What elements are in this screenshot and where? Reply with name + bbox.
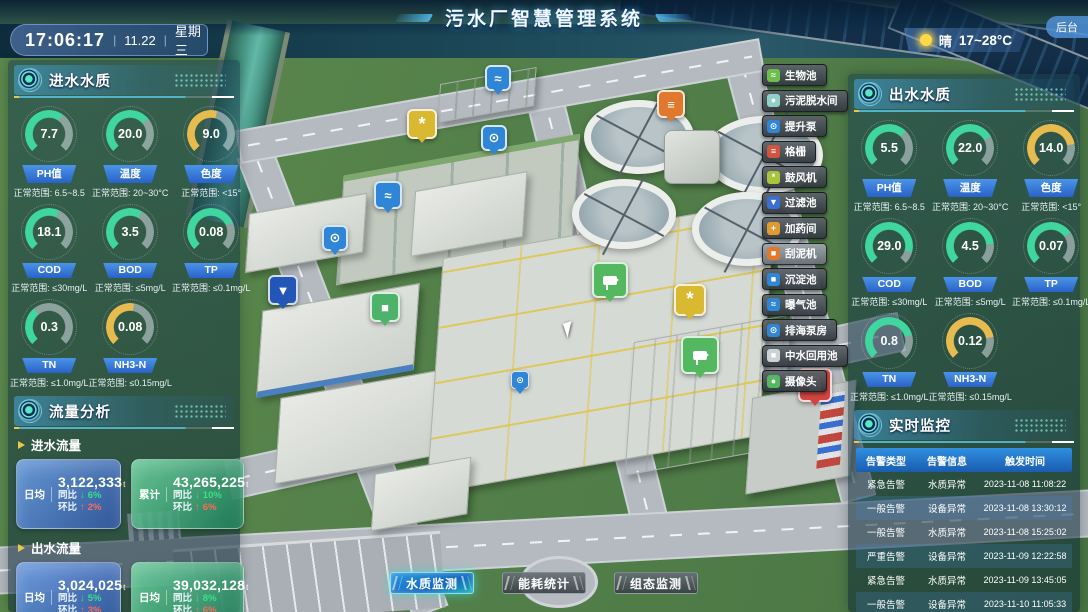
filter-pool-icon: ▼ <box>767 196 780 209</box>
central-hub-building <box>664 130 720 184</box>
facility-menu: ≈生物池 ●污泥脱水间 ⊙提升泵 ≡格栅 *鼓风机 ▼过滤池 +加药间 ■刮泥机… <box>762 64 848 392</box>
gauge-inlet-ph: 7.7 PH值 正常范围: 6.5~8.5 <box>10 106 88 199</box>
alarm-table: 告警类型 告警信息 触发时间 紧急告警水质异常2023-11-08 11:08:… <box>856 448 1072 612</box>
facility-btn-sea-discharge-pump[interactable]: ⊙排海泵房 <box>762 319 837 341</box>
arrow-icon <box>18 441 25 449</box>
datetime-display: 17:06:17 | 11.22 | 星期三 <box>10 24 208 56</box>
alarm-row[interactable]: 一般告警设备异常2023-11-08 13:30:12 <box>856 496 1072 520</box>
yoy-row: 同比↓6% <box>58 490 126 502</box>
up-arrow-icon: ↑ <box>80 605 85 612</box>
flow-analysis-header: 流量分析 <box>14 396 234 426</box>
gauge-inlet-nh3n: 0.08 NH3-N 正常范围: ≤0.15mg/L <box>88 299 171 389</box>
map-marker-camera[interactable] <box>681 336 719 374</box>
metric-label: 日均 <box>139 590 167 605</box>
weather-condition: 晴 <box>939 31 952 50</box>
metric-label: 日均 <box>24 590 52 605</box>
dots-decoration <box>1014 87 1066 101</box>
facility-btn-filter-pool[interactable]: ▼过滤池 <box>762 192 827 214</box>
lift-pump-icon: ⊙ <box>767 120 780 133</box>
metric-body: 3,024,025t 同比↓5% 环比↑3% <box>58 577 126 612</box>
alarm-row[interactable]: 一般告警水质异常2023-11-08 15:25:02 <box>856 520 1072 544</box>
outlet-flow-label: 出水流量 <box>18 538 230 557</box>
facility-btn-blower[interactable]: *鼓风机 <box>762 166 827 188</box>
outlet-flow-cards: 日均 3,024,025t 同比↓5% 环比↑3% 日均 39,032,128t… <box>8 562 240 612</box>
section-title: 出水水质 <box>889 84 951 105</box>
gauge-outlet-nh3n: 0.12 NH3-N 正常范围: ≤0.15mg/L <box>928 313 1011 403</box>
map-marker-camera[interactable] <box>592 262 628 298</box>
down-arrow-icon: ↓ <box>80 593 85 605</box>
facility-btn-dosing-room[interactable]: +加药间 <box>762 217 827 239</box>
outlet-flow-daily-card: 日均 3,024,025t 同比↓5% 环比↑3% <box>16 562 121 612</box>
facility-btn-grate[interactable]: ≡格栅 <box>762 141 816 163</box>
section-underline <box>14 96 234 98</box>
inlet-flow-total-card: 累计 43,265,225t 同比↓10% 环比↑6% <box>131 459 244 529</box>
dots-decoration <box>174 404 226 418</box>
inlet-quality-header: 进水水质 <box>14 65 234 95</box>
mud-scraper-icon: ■ <box>767 247 780 260</box>
section-emblem-icon <box>18 399 42 423</box>
gauge-inlet-chroma: 9.0 色度 正常范围: <15° <box>172 106 250 199</box>
down-arrow-icon: ↓ <box>195 593 200 605</box>
gauge-inlet-tn: 0.3 TN 正常范围: ≤1.0mg/L <box>10 299 88 389</box>
map-marker-pump-small[interactable]: ⊙ <box>511 371 529 389</box>
inlet-quality-panel: 进水水质 7.7 PH值 正常范围: 6.5~8.5 20.0 温度 正常范围:… <box>8 60 240 612</box>
yoy-row: 同比↓8% <box>173 593 249 605</box>
mom-row: 环比↑6% <box>173 502 249 514</box>
section-emblem-icon <box>18 68 42 92</box>
camera-icon <box>693 351 707 360</box>
yoy-row: 同比↓10% <box>173 490 249 502</box>
section-emblem-icon <box>858 413 882 437</box>
sun-icon <box>920 34 932 46</box>
backend-button[interactable]: 后台 <box>1046 16 1088 38</box>
gauge-outlet-temperature: 22.0 温度 正常范围: 20~30°C <box>928 120 1011 213</box>
section-underline <box>854 110 1074 112</box>
camera-icon <box>603 276 617 285</box>
metric-body: 43,265,225t 同比↓10% 环比↑6% <box>173 474 249 514</box>
alarm-row[interactable]: 一般告警设备异常2023-11-10 11:05:33 <box>856 592 1072 612</box>
facility-btn-camera[interactable]: ●摄像头 <box>762 370 827 392</box>
facility-btn-sedimentation-pool[interactable]: ■沉淀池 <box>762 268 827 290</box>
map-marker-reuse-pool[interactable]: ■ <box>370 292 400 322</box>
sea-discharge-pump-icon: ⊙ <box>767 324 780 337</box>
containers <box>816 391 845 469</box>
clarifier-tank <box>572 179 676 249</box>
gauge-inlet-temperature: 20.0 温度 正常范围: 20~30°C <box>88 106 171 199</box>
gauge-inlet-tp: 0.08 TP 正常范围: ≤0.1mg/L <box>172 204 250 294</box>
mom-row: 环比↑6% <box>173 605 249 612</box>
date: 11.22 <box>124 33 156 48</box>
map-marker-scraper[interactable]: ≡ <box>657 90 685 118</box>
aeration-pool-icon: ≈ <box>767 298 780 311</box>
down-arrow-icon: ↓ <box>80 490 85 502</box>
gauge-inlet-cod: 18.1 COD 正常范围: ≤30mg/L <box>10 204 88 294</box>
title-wing-left <box>395 14 434 22</box>
arrow-icon <box>18 544 25 552</box>
alarm-table-header: 告警类型 告警信息 触发时间 <box>856 448 1072 472</box>
map-marker-blower-fan[interactable]: * <box>674 284 706 316</box>
up-arrow-icon: ↑ <box>195 502 200 514</box>
map-marker-sedimentation[interactable]: ≈ <box>374 181 402 209</box>
bio-pool-icon: ≈ <box>767 69 780 82</box>
mom-row: 环比↑2% <box>58 502 126 514</box>
metric-label: 累计 <box>139 487 167 502</box>
separator: | <box>164 33 167 47</box>
flow-value: 3,024,025t <box>58 577 126 593</box>
alarm-row[interactable]: 严重告警设备异常2023-11-09 12:22:58 <box>856 544 1072 568</box>
flow-value: 43,265,225t <box>173 474 249 490</box>
section-emblem-icon <box>858 82 882 106</box>
weekday: 星期三 <box>175 21 207 59</box>
facility-btn-reclaimed-water-pool[interactable]: ■中水回用池 <box>762 345 848 367</box>
grate-icon: ≡ <box>767 145 780 158</box>
inlet-flow-daily-card: 日均 3,122,333t 同比↓6% 环比↑2% <box>16 459 121 529</box>
section-title: 流量分析 <box>49 401 111 422</box>
dots-decoration <box>1014 418 1066 432</box>
gauge-outlet-tp: 0.07 TP 正常范围: ≤0.1mg/L <box>1012 218 1088 308</box>
blower-icon: * <box>767 171 780 184</box>
gauge-outlet-ph: 5.5 PH值 正常范围: 6.5~8.5 <box>850 120 928 213</box>
bottom-tab-bar: 水质监测 能耗统计 组态监测 <box>390 572 698 594</box>
dashboard: ≈ ≡ * ⊙ ≈ ⊙ ▼ ■ * ⊙ 污水厂智慧管理系统 17:06:17 |… <box>0 0 1088 612</box>
outlet-flow-total-card: 日均 39,032,128t 同比↓8% 环比↑6% <box>131 562 244 612</box>
sedimentation-pool-icon: ■ <box>767 273 780 286</box>
separator: | <box>113 33 116 47</box>
section-underline <box>14 427 234 429</box>
inlet-flow-cards: 日均 3,122,333t 同比↓6% 环比↑2% 累计 43,265,225t… <box>8 459 240 529</box>
dots-decoration <box>174 73 226 87</box>
sludge-dewatering-icon: ● <box>767 94 780 107</box>
section-title: 进水水质 <box>49 70 111 91</box>
inlet-gauge-grid: 7.7 PH值 正常范围: 6.5~8.5 20.0 温度 正常范围: 20~3… <box>8 99 240 391</box>
page-title-text: 污水厂智慧管理系统 <box>445 4 643 31</box>
inlet-flow-label: 进水流量 <box>18 435 230 454</box>
down-arrow-icon: ↓ <box>195 490 200 502</box>
gauge-outlet-tn: 0.8 TN 正常范围: ≤1.0mg/L <box>850 313 928 403</box>
gauge-inlet-bod: 3.5 BOD 正常范围: ≤5mg/L <box>88 204 171 294</box>
metric-body: 3,122,333t 同比↓6% 环比↑2% <box>58 474 126 514</box>
temp-range: 17~28°C <box>959 33 1012 48</box>
section-underline <box>854 441 1074 443</box>
page-title: 污水厂智慧管理系统 <box>397 4 691 31</box>
up-arrow-icon: ↑ <box>195 605 200 612</box>
mom-row: 环比↑3% <box>58 605 126 612</box>
weather-display: 晴 17~28°C <box>904 28 1028 52</box>
map-marker-aeration-basin[interactable]: ≈ <box>485 65 511 91</box>
outlet-quality-panel: 出水水质 5.5 PH值 正常范围: 6.5~8.5 22.0 温度 正常范围:… <box>848 74 1080 612</box>
section-title: 实时监控 <box>889 415 951 436</box>
map-marker-filter[interactable]: ▼ <box>268 275 298 305</box>
camera-icon: ● <box>767 375 780 388</box>
facility-btn-sludge-dewatering[interactable]: ●污泥脱水间 <box>762 90 848 112</box>
reclaimed-water-pool-icon: ■ <box>767 349 780 362</box>
outlet-gauge-grid: 5.5 PH值 正常范围: 6.5~8.5 22.0 温度 正常范围: 20~3… <box>848 113 1080 405</box>
map-marker-pump[interactable]: ⊙ <box>322 225 348 251</box>
dosing-room-icon: + <box>767 222 780 235</box>
facility-btn-bio-pool[interactable]: ≈生物池 <box>762 64 827 86</box>
metric-label: 日均 <box>24 487 52 502</box>
facility-btn-lift-pump[interactable]: ⊙提升泵 <box>762 115 827 137</box>
flow-value: 3,122,333t <box>58 474 126 490</box>
tab-configuration-monitor[interactable]: 组态监测 <box>614 572 698 594</box>
tab-water-quality-monitor[interactable]: 水质监测 <box>390 572 474 594</box>
up-arrow-icon: ↑ <box>80 502 85 514</box>
gauge-outlet-cod: 29.0 COD 正常范围: ≤30mg/L <box>850 218 928 308</box>
gauge-outlet-bod: 4.5 BOD 正常范围: ≤5mg/L <box>928 218 1011 308</box>
clock: 17:06:17 <box>25 30 105 51</box>
facility-btn-mud-scraper[interactable]: ■刮泥机 <box>762 243 827 265</box>
gauge-outlet-chroma: 14.0 色度 正常范围: <15° <box>1012 120 1088 213</box>
monitoring-header: 实时监控 <box>854 410 1074 440</box>
yoy-row: 同比↓5% <box>58 593 126 605</box>
title-wing-right <box>655 14 694 22</box>
tab-energy-statistics[interactable]: 能耗统计 <box>502 572 586 594</box>
facility-btn-aeration-pool[interactable]: ≈曝气池 <box>762 294 827 316</box>
alarm-row[interactable]: 紧急告警水质异常2023-11-09 13:45:05 <box>856 568 1072 592</box>
metric-body: 39,032,128t 同比↓8% 环比↑6% <box>173 577 249 612</box>
alarm-row[interactable]: 紧急告警水质异常2023-11-08 11:08:22 <box>856 472 1072 496</box>
map-marker-blower-fan[interactable]: * <box>407 109 437 139</box>
outlet-quality-header: 出水水质 <box>854 79 1074 109</box>
map-marker-lift-pump[interactable]: ⊙ <box>481 125 507 151</box>
flow-value: 39,032,128t <box>173 577 249 593</box>
